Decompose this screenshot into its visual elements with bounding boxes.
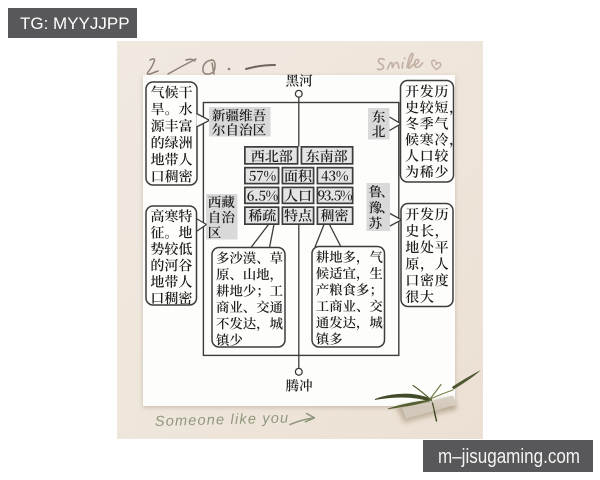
svg-text:TG: MYYJJPP: TG: MYYJJPP [20, 14, 130, 33]
svg-text:m–jisugaming.com: m–jisugaming.com [438, 445, 580, 468]
